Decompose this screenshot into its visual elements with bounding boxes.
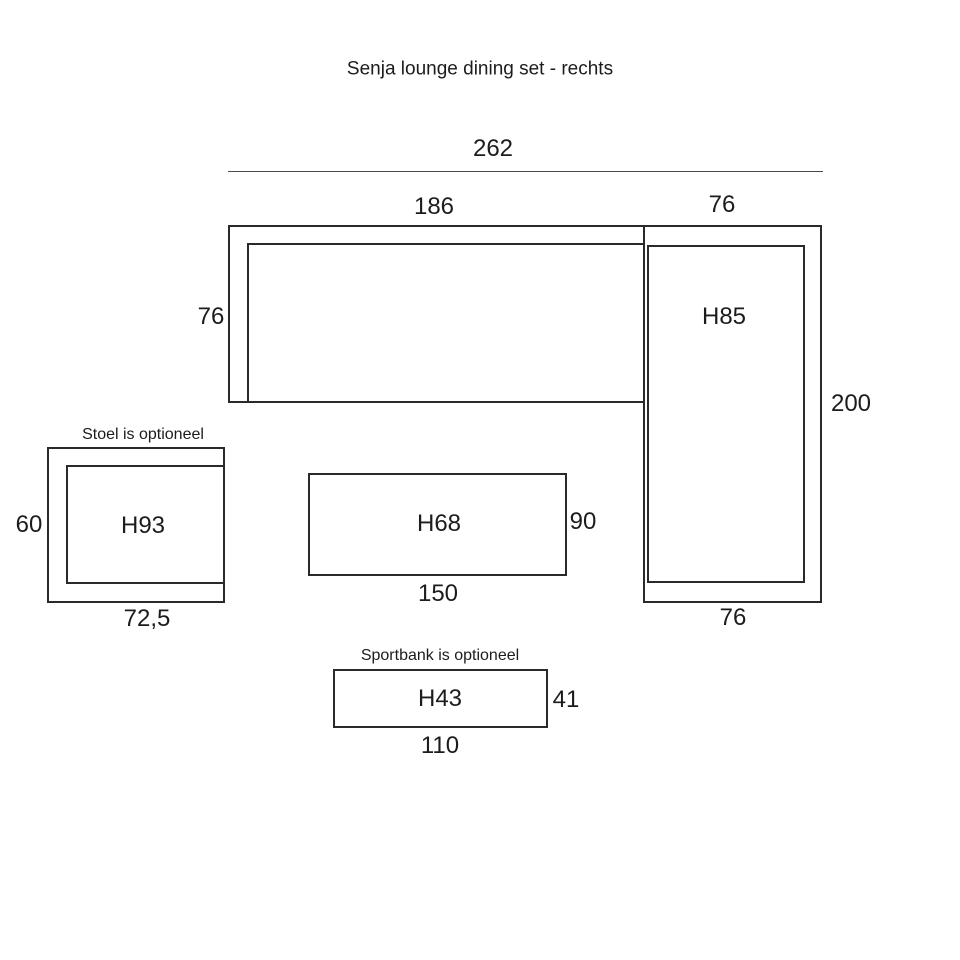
sofa-chaise-width-label: 76 — [720, 606, 747, 630]
chair-depth-label: 60 — [16, 513, 43, 537]
chair-width-label: 72,5 — [124, 607, 171, 631]
bench-width-label: 110 — [421, 734, 459, 758]
sofa-chaise-inner-outline — [647, 245, 805, 583]
sofa-total-width-label: 262 — [473, 137, 513, 161]
bench-caption: Sportbank is optioneel — [361, 648, 519, 664]
sofa-chaise-section-width-label: 76 — [709, 193, 736, 217]
sofa-seat-depth-label: 76 — [198, 305, 225, 329]
dimension-diagram: Senja lounge dining set - rechts 262 186… — [0, 0, 960, 960]
bench-depth-label: 41 — [553, 688, 580, 712]
diagram-title: Senja lounge dining set - rechts — [347, 60, 613, 79]
bench-height-label: H43 — [418, 687, 462, 711]
chair-height-label: H93 — [121, 514, 165, 538]
table-depth-label: 90 — [570, 510, 597, 534]
chair-caption: Stoel is optioneel — [82, 427, 204, 443]
sofa-seat-inner-outline — [247, 243, 645, 403]
sofa-chaise-height-label: H85 — [702, 305, 746, 329]
sofa-seat-section-width-label: 186 — [414, 195, 454, 219]
sofa-total-width-dimension-line — [228, 171, 823, 172]
table-width-label: 150 — [418, 582, 458, 606]
sofa-total-depth-label: 200 — [831, 392, 871, 416]
table-height-label: H68 — [417, 512, 461, 536]
